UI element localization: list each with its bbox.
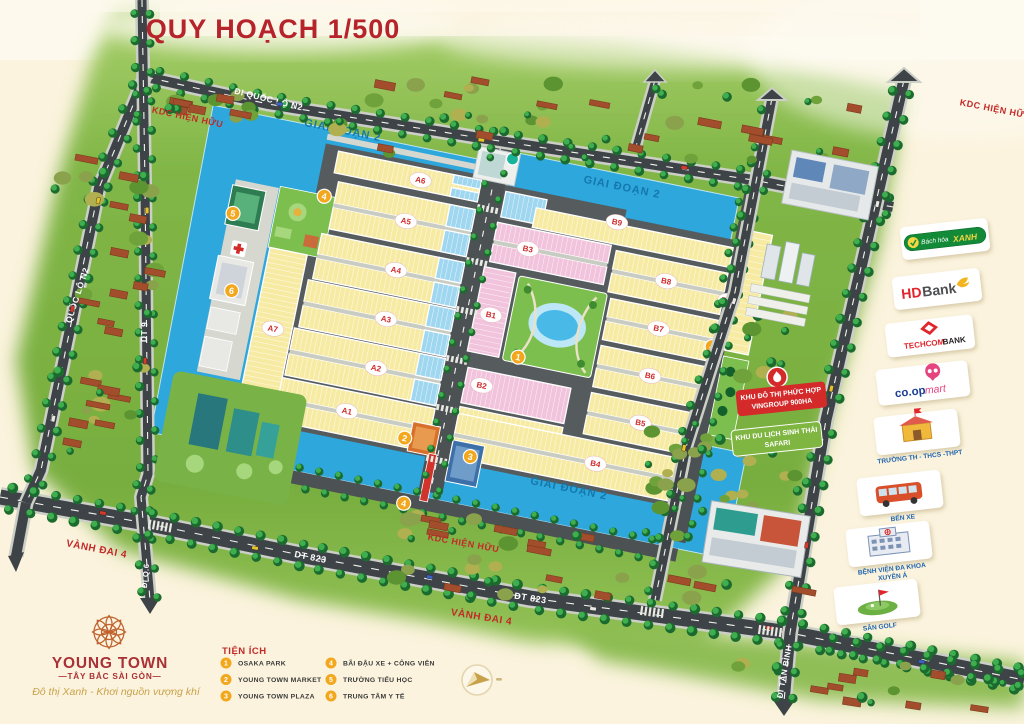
svg-text:YOUNG TOWN PLAZA: YOUNG TOWN PLAZA — [238, 694, 315, 701]
svg-text:4: 4 — [329, 661, 333, 668]
svg-text:YOUNG TOWN: YOUNG TOWN — [52, 655, 168, 672]
svg-text:2: 2 — [224, 677, 228, 684]
svg-text:OSAKA PARK: OSAKA PARK — [238, 661, 286, 668]
svg-text:TRƯỜNG TIỂU HỌC: TRƯỜNG TIỂU HỌC — [343, 675, 413, 684]
svg-text:BÃI ĐẬU XE + CÔNG VIÊN: BÃI ĐẬU XE + CÔNG VIÊN — [343, 659, 435, 668]
svg-text:TIỆN ÍCH: TIỆN ÍCH — [222, 645, 267, 657]
svg-text:—TÂY BẮC SÀI GÒN—: —TÂY BẮC SÀI GÒN— — [58, 670, 161, 681]
svg-text:1: 1 — [224, 661, 228, 668]
svg-text:QUY HOẠCH 1/500: QUY HOẠCH 1/500 — [146, 14, 401, 44]
svg-text:6: 6 — [329, 694, 333, 701]
svg-text:Đô thị Xanh - Khơi nguồn vượng: Đô thị Xanh - Khơi nguồn vượng khí — [32, 686, 201, 698]
svg-text:HD: HD — [900, 284, 922, 302]
svg-text:DT 9: DT 9 — [139, 322, 150, 343]
svg-text:mart: mart — [924, 382, 947, 396]
svg-text:3: 3 — [224, 694, 228, 701]
svg-text:5: 5 — [329, 677, 333, 684]
svg-text:YOUNG TOWN MARKET: YOUNG TOWN MARKET — [238, 677, 322, 684]
